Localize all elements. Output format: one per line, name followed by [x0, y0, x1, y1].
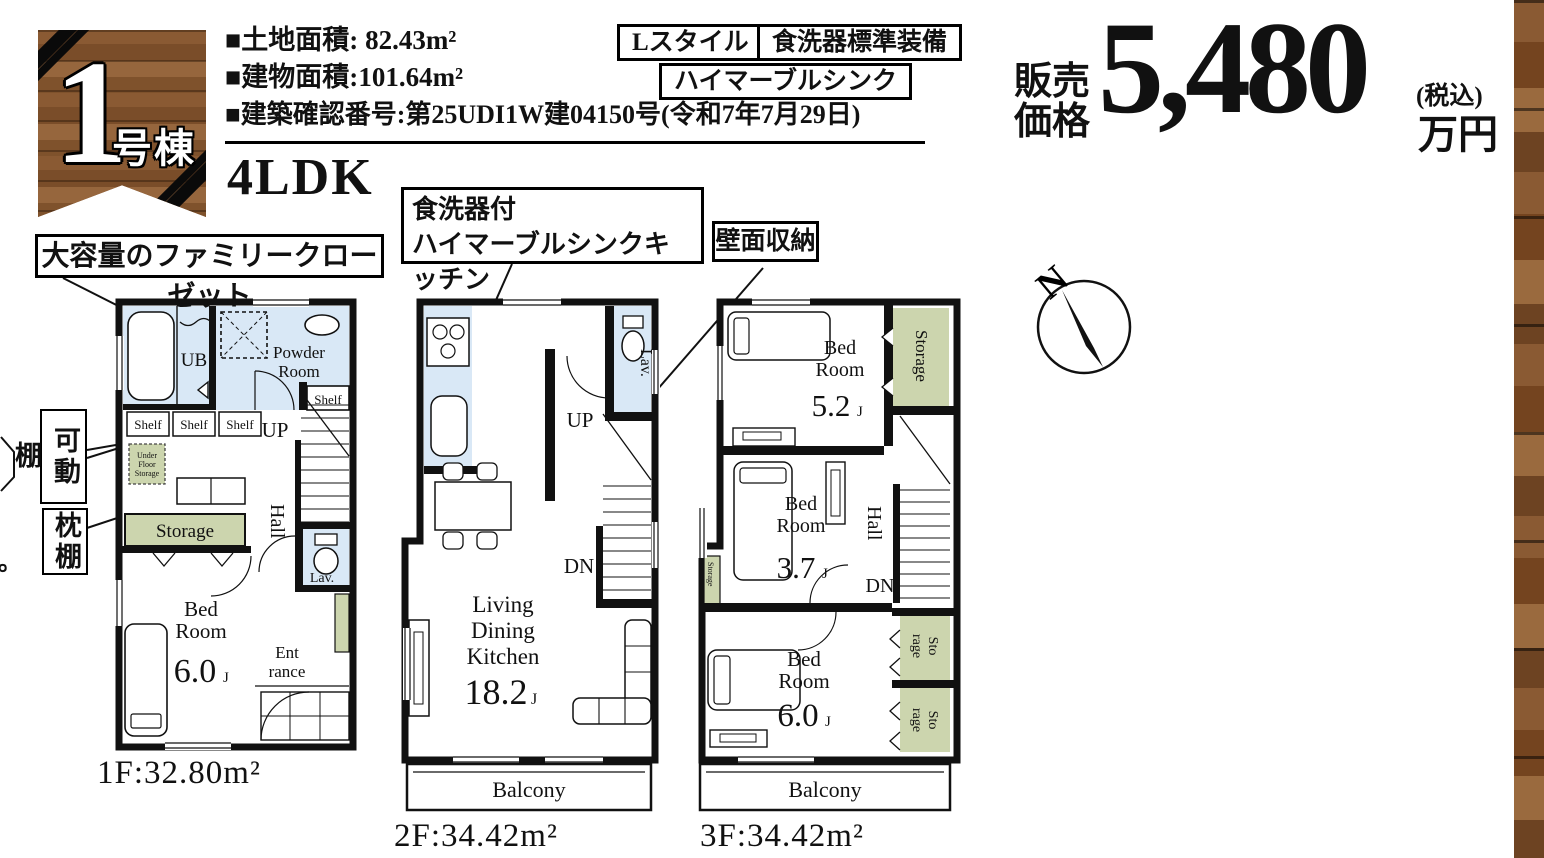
svg-text:J: J: [531, 691, 537, 708]
svg-text:J: J: [223, 670, 229, 686]
label-ldk: Living: [472, 592, 534, 617]
svg-text:Room: Room: [778, 669, 829, 693]
svg-text:Room: Room: [278, 362, 320, 381]
label-dn: DN: [866, 575, 895, 597]
svg-text:Kitchen: Kitchen: [467, 644, 540, 669]
svg-text:rance: rance: [269, 662, 306, 681]
price-label: 販売 価格: [1014, 62, 1090, 142]
tv-board-icon: [826, 462, 845, 524]
tv-board-icon: [733, 428, 795, 446]
floorplan-2f: Lav. UP DN Living Dining Kitchen 18.2 J …: [393, 294, 661, 819]
label-bedroom-3-7: Bed: [785, 493, 817, 515]
floor3-area-label: 3F:34.42m²: [700, 818, 864, 855]
left-edge-text-fragment: 。: [0, 542, 22, 577]
label-shelf: Shelf: [226, 417, 254, 432]
label-entrance: Ent: [275, 643, 299, 662]
flyer-canvas: 1 号棟 ■土地面積: 82.43m² ■建物面積:101.64m² ■建築確認…: [0, 0, 1544, 858]
label-under-floor: Under: [137, 451, 157, 460]
svg-text:rage: rage: [909, 634, 924, 658]
callout-kitchen: 食洗器付 ハイマーブルシンクキッチン: [401, 187, 704, 264]
label-shelf: Shelf: [180, 417, 208, 432]
svg-text:Room: Room: [175, 619, 226, 643]
floorplan-2f-walls: [403, 298, 660, 810]
label-bedroom: Bed: [184, 597, 218, 621]
label-ldk-size: 18.2: [465, 672, 528, 712]
label-up: UP: [262, 418, 289, 442]
storage-3f-right2: [900, 688, 950, 752]
tag-l-style: Lスタイル: [617, 24, 764, 61]
price-amount: 5,480: [1098, 0, 1365, 154]
label-storage-right1: Sto rage: [909, 634, 940, 658]
label-hall: Hall: [266, 504, 288, 539]
label-shelf: Shelf: [134, 417, 162, 432]
label-shelf: Shelf: [314, 392, 342, 407]
floorplan-3f: Bed Room 5.2 J Storage Bed Room 3.7 J Ha…: [688, 294, 960, 819]
svg-text:J: J: [822, 566, 828, 582]
stove-icon: [427, 318, 469, 366]
svg-text:J: J: [857, 404, 863, 420]
callout-wall-storage: 壁面収納: [712, 221, 819, 262]
storage-3f-right1: [900, 616, 950, 680]
label-lav: Lav.: [637, 349, 654, 377]
tag-dishwasher: 食洗器標準装備: [757, 24, 962, 61]
label-lav: Lav.: [310, 571, 334, 586]
callout-family-closet: 大容量のファミリークローゼット: [35, 234, 384, 278]
svg-text:Room: Room: [816, 359, 865, 381]
svg-text:Sto: Sto: [925, 637, 940, 656]
price-unit: 万円: [1418, 102, 1498, 160]
wood-texture-strip: [1514, 0, 1544, 858]
label-storage-right2: Sto rage: [909, 708, 940, 732]
tv-board-icon: [710, 730, 767, 747]
kitchen-counter-wall: [545, 349, 555, 501]
shoe-cabinet: [335, 594, 349, 652]
label-balcony: Balcony: [788, 777, 861, 802]
label-pillow-shelf: 枕棚: [42, 508, 88, 575]
label-hall: Hall: [863, 506, 885, 541]
compass: N: [1030, 252, 1145, 382]
label-movable-shelf: 可動棚: [40, 409, 87, 504]
floor1-area-label: 1F:32.80m²: [97, 755, 261, 792]
label-powder: Powder: [273, 343, 325, 362]
label-dn: DN: [564, 554, 594, 578]
compass-north-label: N: [1030, 258, 1077, 308]
svg-text:J: J: [825, 714, 831, 730]
compass-needle-icon: [1062, 290, 1103, 367]
label-storage-small: Storage: [706, 562, 715, 587]
label-balcony: Balcony: [492, 777, 565, 802]
svg-text:Floor: Floor: [138, 460, 156, 469]
svg-text:Dining: Dining: [471, 618, 535, 643]
label-bedroom-5-2: Bed: [824, 337, 856, 359]
svg-text:Room: Room: [777, 515, 826, 537]
floor2-area-label: 2F:34.42m²: [394, 818, 558, 855]
kitchen-sink-icon: [431, 396, 467, 456]
spec-confirmation-number: ■建築確認番号:第25UDI1W建04150号(令和7年7月29日): [225, 96, 965, 133]
label-storage: Storage: [156, 521, 214, 542]
svg-text:6.0: 6.0: [777, 698, 818, 734]
svg-text:rage: rage: [909, 708, 924, 732]
label-bedroom-size: 6.0: [174, 653, 217, 690]
label-ub: UB: [181, 350, 207, 371]
spec-divider-line: [225, 141, 925, 144]
bathtub-icon: [128, 312, 174, 400]
label-up: UP: [567, 408, 594, 432]
label-storage: Storage: [912, 330, 931, 382]
sink-icon: [305, 315, 339, 335]
svg-text:5.2: 5.2: [812, 388, 851, 423]
dining-table-icon: [435, 482, 511, 530]
layout-type: 4LDK: [227, 148, 374, 207]
label-bedroom-6-0: Bed: [787, 647, 821, 671]
building-number-badge: 1 号棟: [38, 30, 206, 217]
floorplan-1f: UB Powder Room Shelf Shelf Shelf Shelf U…: [103, 294, 358, 759]
svg-text:Storage: Storage: [135, 469, 160, 478]
tag-high-marble-sink: ハイマーブルシンク: [659, 63, 912, 100]
svg-text:3.7: 3.7: [777, 550, 816, 585]
svg-text:Sto: Sto: [925, 711, 940, 730]
building-number-suffix: 号棟: [112, 116, 196, 174]
